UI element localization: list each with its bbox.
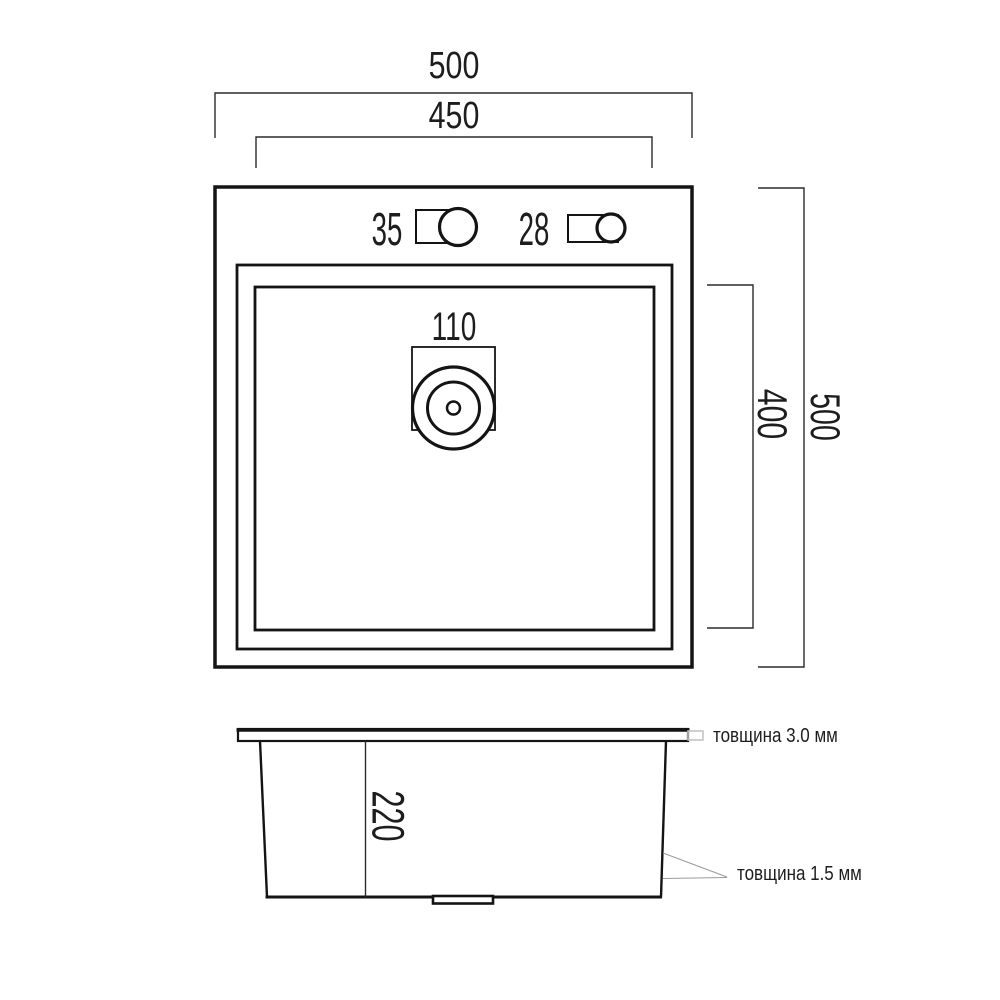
side-view-right-wall <box>661 741 666 897</box>
dim-label-faucet-hole: 35 <box>372 206 403 252</box>
rim-thickness-highlight-box <box>688 731 703 740</box>
dim-label-outer-width: 500 <box>429 47 480 85</box>
dim-bracket-right-400 <box>707 285 753 628</box>
accessory-hole-circle <box>597 214 625 242</box>
wall-thickness-leader-upper <box>663 853 727 877</box>
technical-drawing: 500 450 35 28 110 400 500 220 товщина 3.… <box>0 0 1000 1000</box>
wall-thickness-leader-lower <box>663 878 727 879</box>
drawing-linework <box>0 0 1000 1000</box>
faucet-hole-circle <box>440 209 477 246</box>
dim-label-outer-height: 500 <box>804 393 846 441</box>
wall-thickness-label: товщина 1.5 мм <box>737 864 862 884</box>
dim-bracket-top-450 <box>256 137 652 168</box>
dim-label-drain: 110 <box>432 307 477 347</box>
rim-thickness-label: товщина 3.0 мм <box>713 726 838 746</box>
dim-label-inner-width: 450 <box>429 97 480 135</box>
dim-label-inner-height: 400 <box>751 389 793 439</box>
dim-label-depth: 220 <box>366 790 411 841</box>
side-view-drain-stub <box>433 896 493 904</box>
dim-label-accessory-hole: 28 <box>519 206 550 252</box>
side-view-left-wall <box>260 741 267 897</box>
drain-circle-center <box>447 402 460 415</box>
